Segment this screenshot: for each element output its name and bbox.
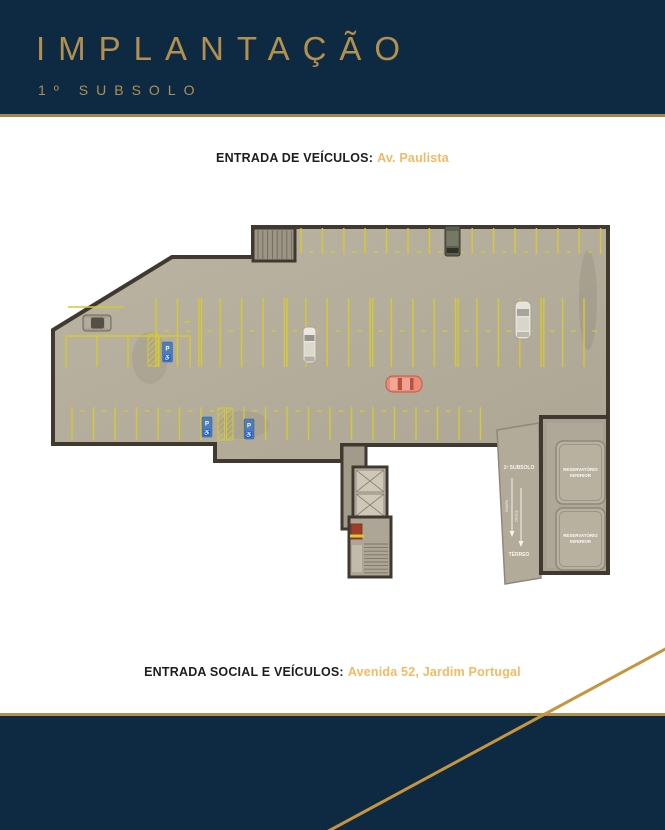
central-core [342,445,391,577]
ramp-bottom-label: TÉRREO [509,550,530,558]
social-entrance-prefix: ENTRADA SOCIAL E VEÍCULOS: [144,665,344,679]
ramp-side-label: DESCE [515,509,519,521]
ramp-side-label: RAMPA [505,499,509,512]
reservoir-upper: RESERVATÓRIO INFERIOR [556,441,605,504]
vehicle-entrance-prefix: ENTRADA DE VEÍCULOS: [216,151,373,165]
reservoir-annex: RESERVATÓRIO INFERIOR RESERVATÓRIO INFER… [541,417,608,573]
page-title: IMPLANTAÇÃO [36,30,413,68]
svg-text:♿: ♿ [203,429,211,437]
svg-text:P: P [205,422,209,428]
brochure-page: IMPLANTAÇÃO 1º SUBSOLO ENTRADA DE VEÍCUL… [0,0,665,830]
svg-text:RESERVATÓRIO: RESERVATÓRIO [563,467,598,472]
svg-text:P: P [165,347,169,353]
page-subtitle: 1º SUBSOLO [38,82,202,98]
svg-text:♿: ♿ [245,431,253,439]
header-band: IMPLANTAÇÃO 1º SUBSOLO [0,0,665,117]
car-salmon [386,376,422,392]
reservoir-lower: RESERVATÓRIO INFERIOR [556,508,605,570]
upper-stairwell [253,228,295,261]
floor-plan: P ♿ P ♿ P ♿ [48,220,612,588]
vehicle-entrance-label: ENTRADA DE VEÍCULOS:Av. Paulista [0,151,665,165]
svg-text:RESERVATÓRIO: RESERVATÓRIO [563,533,598,538]
social-entrance-label: ENTRADA SOCIAL E VEÍCULOS:Avenida 52, Ja… [0,665,665,679]
accessibility-parking-icon: P ♿ [244,419,254,439]
svg-text:INFERIOR: INFERIOR [570,473,592,478]
vehicle-entrance-value: Av. Paulista [377,151,449,165]
van-dark [445,226,460,256]
footer-band [0,713,665,830]
car-grey [83,315,111,331]
suv-white [515,301,531,339]
access-ramp: 1º SUBSOLO RAMPA DESCE TÉRREO [497,423,541,584]
svg-text:P: P [247,424,251,430]
svg-text:INFERIOR: INFERIOR [570,539,592,544]
svg-text:♿: ♿ [164,354,172,362]
car-white [303,327,316,363]
social-entrance-value: Avenida 52, Jardim Portugal [348,665,521,679]
ramp-top-label: 1º SUBSOLO [504,465,535,471]
accessibility-parking-icon: P ♿ [202,417,212,437]
accessibility-parking-icon: P ♿ [163,342,173,362]
